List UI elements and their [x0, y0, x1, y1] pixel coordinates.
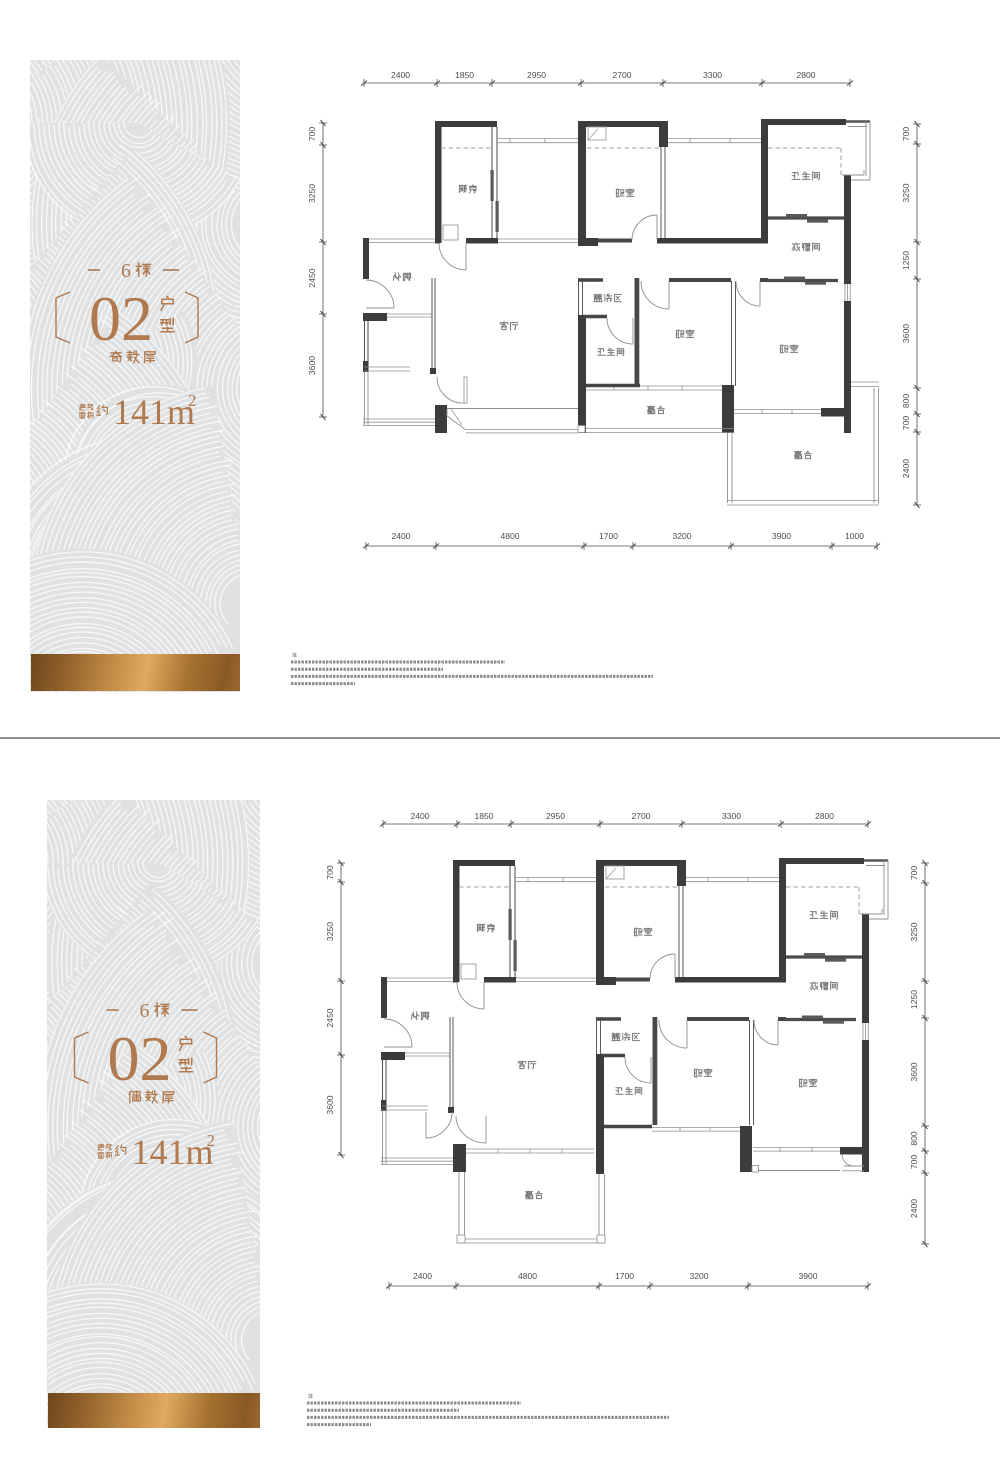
svg-text:1250: 1250: [901, 251, 911, 270]
svg-text:4800: 4800: [500, 531, 519, 541]
svg-text:700: 700: [901, 416, 911, 431]
svg-text:2400: 2400: [391, 70, 410, 80]
svg-text:3300: 3300: [722, 811, 741, 821]
svg-text:1000: 1000: [845, 531, 864, 541]
svg-text:3600: 3600: [325, 1095, 335, 1114]
svg-text:3250: 3250: [909, 922, 919, 941]
svg-text:3250: 3250: [307, 184, 317, 203]
svg-text:2800: 2800: [796, 70, 815, 80]
svg-text:1700: 1700: [615, 1271, 634, 1281]
svg-text:2800: 2800: [815, 811, 834, 821]
svg-text:2700: 2700: [631, 811, 650, 821]
svg-text:2950: 2950: [546, 811, 565, 821]
svg-text:2700: 2700: [612, 70, 631, 80]
svg-text:2400: 2400: [410, 811, 429, 821]
svg-text:3900: 3900: [772, 531, 791, 541]
svg-text:800: 800: [909, 1131, 919, 1146]
svg-text:3300: 3300: [703, 70, 722, 80]
svg-text:2400: 2400: [901, 459, 911, 478]
svg-text:700: 700: [909, 866, 919, 881]
svg-text:2950: 2950: [527, 70, 546, 80]
svg-text:700: 700: [901, 127, 911, 142]
svg-text:3600: 3600: [909, 1062, 919, 1081]
svg-text:2450: 2450: [325, 1008, 335, 1027]
svg-text:3250: 3250: [901, 183, 911, 202]
svg-text:2400: 2400: [391, 531, 410, 541]
svg-text:700: 700: [307, 127, 317, 142]
svg-text:1850: 1850: [474, 811, 493, 821]
svg-text:2400: 2400: [413, 1271, 432, 1281]
svg-text:1850: 1850: [455, 70, 474, 80]
svg-text:700: 700: [909, 1155, 919, 1170]
svg-text:800: 800: [901, 394, 911, 409]
svg-text:2400: 2400: [909, 1199, 919, 1218]
svg-text:1700: 1700: [599, 531, 618, 541]
svg-text:3600: 3600: [307, 356, 317, 375]
svg-text:3250: 3250: [325, 922, 335, 941]
svg-text:4800: 4800: [518, 1271, 537, 1281]
svg-text:2450: 2450: [307, 268, 317, 287]
svg-text:3900: 3900: [798, 1271, 817, 1281]
svg-text:3200: 3200: [689, 1271, 708, 1281]
svg-text:1250: 1250: [909, 990, 919, 1009]
svg-text:700: 700: [325, 865, 335, 880]
svg-text:3600: 3600: [901, 324, 911, 343]
svg-text:3200: 3200: [672, 531, 691, 541]
